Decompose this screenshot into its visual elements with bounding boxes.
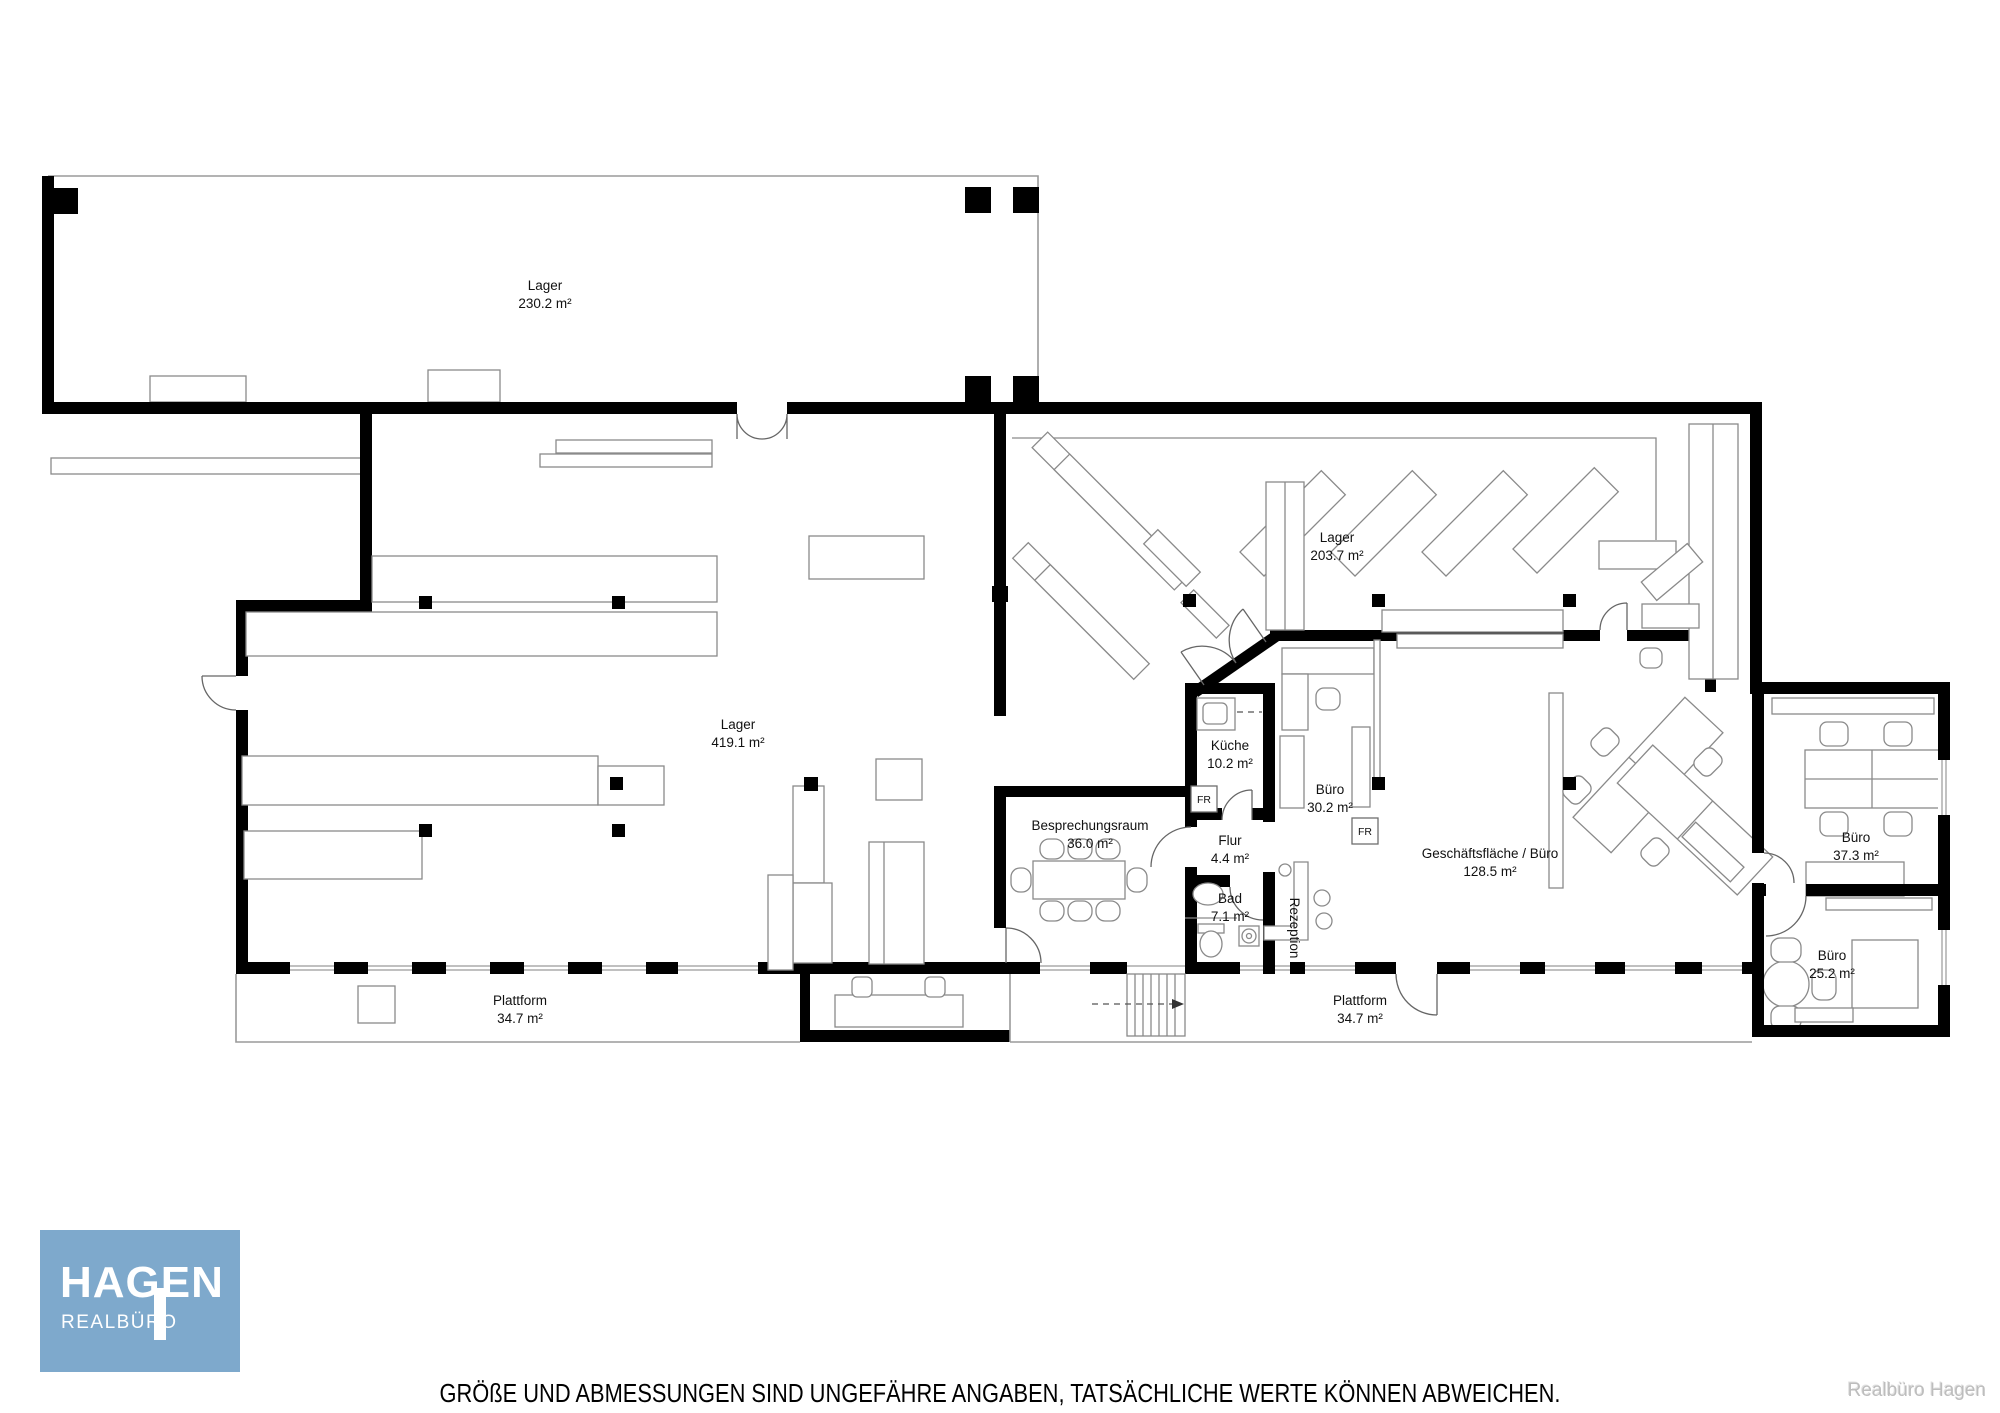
stairs <box>1092 974 1185 1036</box>
logo-wordmark: HAGEN <box>60 1258 224 1308</box>
label-buero-mitte: Büro30.2 m² <box>1307 782 1353 815</box>
label-kueche: Küche10.2 m² <box>1207 738 1253 771</box>
label-rezeption: Rezeption <box>1287 898 1302 959</box>
svg-text:419.1 m²: 419.1 m² <box>711 735 765 750</box>
label-flur: Flur4.4 m² <box>1211 833 1250 866</box>
svg-text:Büro: Büro <box>1818 948 1847 963</box>
svg-text:128.5 m²: 128.5 m² <box>1463 864 1517 879</box>
svg-text:Lager: Lager <box>528 278 563 293</box>
svg-text:Küche: Küche <box>1211 738 1249 753</box>
svg-text:10.2 m²: 10.2 m² <box>1207 756 1253 771</box>
svg-text:Besprechungsraum: Besprechungsraum <box>1031 818 1148 833</box>
plattform-links <box>236 974 800 1042</box>
door-besprechungsraum-sw <box>1006 928 1041 963</box>
label-lager-links: Lager230.2 m² <box>518 278 572 311</box>
lower-landing-block <box>800 974 1010 1042</box>
door-lager-rechts <box>1600 603 1627 630</box>
logo-subtitle: REALBÜRO <box>61 1312 178 1334</box>
label-plattform-links: Plattform34.7 m² <box>493 993 547 1026</box>
disclaimer-text: GRÖßE UND ABMESSUNGEN SIND UNGEFÄHRE ANG… <box>160 1378 1840 1409</box>
svg-text:37.3 m²: 37.3 m² <box>1833 848 1879 863</box>
room-lager-mitte <box>242 440 924 970</box>
svg-text:Plattform: Plattform <box>493 993 547 1008</box>
svg-text:4.4 m²: 4.4 m² <box>1211 851 1250 866</box>
svg-text:7.1 m²: 7.1 m² <box>1211 909 1250 924</box>
watermark-text: Realbüro Hagen <box>1848 1380 1986 1402</box>
plattform-rechts <box>1010 974 1752 1042</box>
label-plattform-rechts: Plattform34.7 m² <box>1333 993 1387 1026</box>
svg-text:Plattform: Plattform <box>1333 993 1387 1008</box>
stairs-direction-arrow <box>1172 999 1184 1009</box>
company-logo: HAGEN REALBÜRO <box>40 1230 240 1372</box>
label-lager-mitte: Lager419.1 m² <box>711 717 765 750</box>
room-besprechungsraum <box>1011 839 1147 921</box>
building-lager-links <box>42 176 1039 474</box>
svg-text:36.0 m²: 36.0 m² <box>1067 836 1113 851</box>
floorplan-page: FR FR <box>0 0 2000 1413</box>
marker-fr-buero: FR <box>1358 826 1372 838</box>
svg-text:30.2 m²: 30.2 m² <box>1307 800 1353 815</box>
door-west-entrance <box>202 676 236 710</box>
svg-text:Lager: Lager <box>1320 530 1355 545</box>
svg-text:Lager: Lager <box>721 717 756 732</box>
svg-text:25.2 m²: 25.2 m² <box>1809 966 1855 981</box>
label-buero-25: Büro25.2 m² <box>1809 948 1855 981</box>
svg-text:Büro: Büro <box>1842 830 1871 845</box>
door-buero-25 <box>1766 896 1806 936</box>
marker-fr-kueche: FR <box>1197 794 1211 806</box>
svg-text:Flur: Flur <box>1218 833 1242 848</box>
svg-text:34.7 m²: 34.7 m² <box>1337 1011 1383 1026</box>
floorplan-drawing: FR FR <box>0 0 2000 1413</box>
svg-text:203.7 m²: 203.7 m² <box>1310 548 1364 563</box>
svg-text:Geschäftsfläche / Büro: Geschäftsfläche / Büro <box>1422 846 1559 861</box>
svg-text:Bad: Bad <box>1218 891 1242 906</box>
door-lager-top <box>737 414 787 439</box>
door-plattform <box>1396 974 1437 1015</box>
svg-text:Rezeption: Rezeption <box>1287 898 1302 959</box>
door-kueche <box>1222 790 1252 820</box>
svg-text:34.7 m²: 34.7 m² <box>497 1011 543 1026</box>
svg-text:Büro: Büro <box>1316 782 1345 797</box>
label-geschaeftsflaeche: Geschäftsfläche / Büro128.5 m² <box>1422 846 1559 879</box>
svg-text:230.2 m²: 230.2 m² <box>518 296 572 311</box>
door-besprechungsraum-e <box>1151 827 1191 867</box>
